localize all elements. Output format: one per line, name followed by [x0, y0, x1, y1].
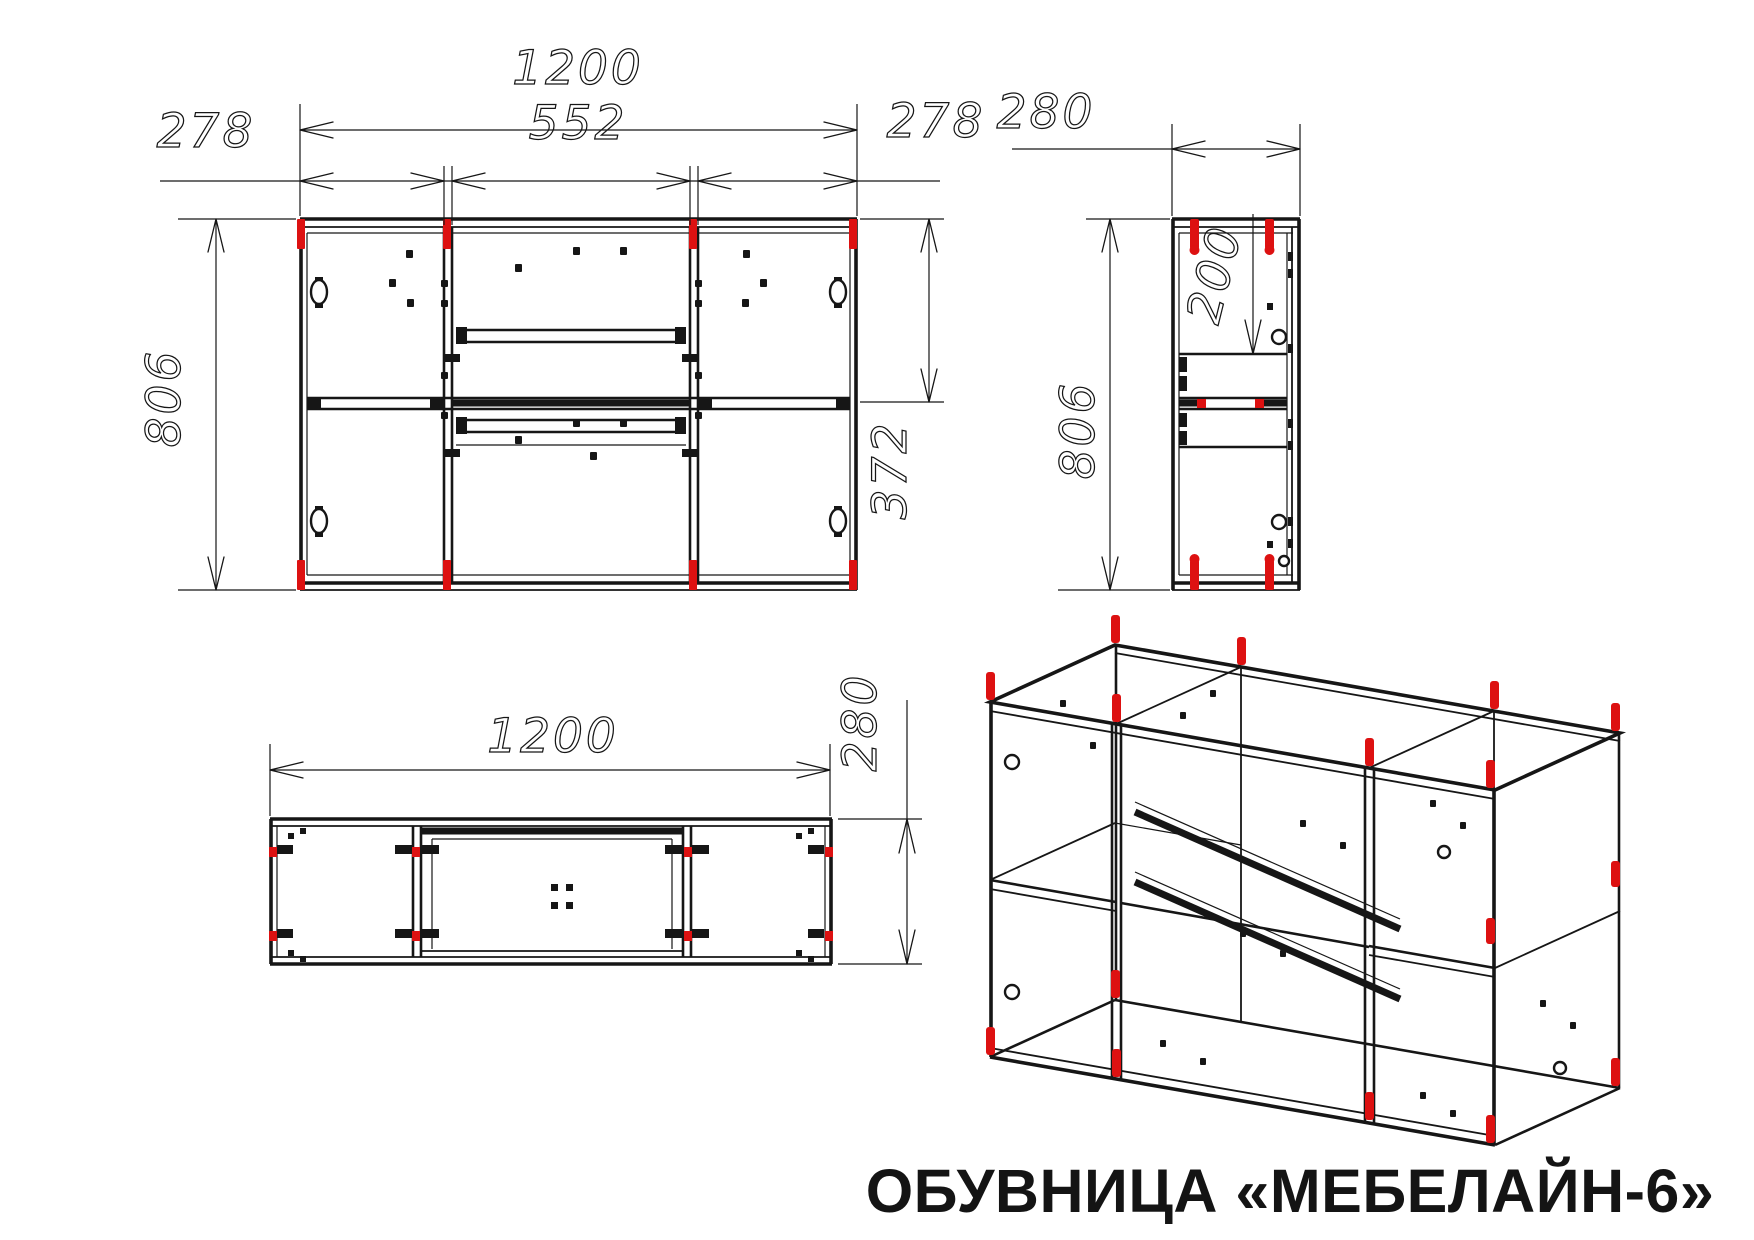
side-view: 280 200 806: [997, 85, 1300, 590]
dim-label-front-total-width: 1200: [512, 41, 644, 96]
dim-label-front-left-section: 278: [157, 104, 256, 159]
dim-label-side-depth: 280: [997, 85, 1096, 140]
dim-plan-depth: 280: [833, 673, 922, 964]
dim-side-total-height: 806: [1051, 219, 1170, 590]
dim-label-plan-depth: 280: [833, 673, 888, 772]
dim-front-top-to-shelf: 372: [860, 219, 944, 519]
plan-structure: [270, 819, 832, 964]
drawing-sheet: 1200 278 552 278 806 372: [0, 0, 1754, 1240]
product-title: ОБУВНИЦА «МЕБЕЛАЙН-6»: [866, 1156, 1715, 1225]
front-view: 1200 278 552 278 806 372: [137, 41, 985, 590]
dim-side-top-to-first-shelf: 200: [1176, 214, 1261, 354]
dim-label-front-right-section: 278: [887, 94, 986, 149]
front-structure: [300, 219, 857, 590]
iso-structure: [990, 645, 1620, 1145]
dim-label-side-total-height: 806: [1051, 381, 1106, 480]
front-hinge-cams: [311, 277, 846, 537]
dim-label-front-total-height: 806: [137, 349, 192, 448]
dim-side-depth: 280: [997, 85, 1300, 216]
dim-label-front-top-to-shelf: 372: [863, 421, 918, 520]
plan-connector-pins: [269, 847, 833, 941]
isometric-view: [986, 615, 1620, 1145]
dim-label-plan-total-width: 1200: [487, 709, 619, 764]
plan-view: 1200 280: [269, 673, 922, 964]
dim-label-side-top-to-first-shelf: 200: [1176, 220, 1253, 329]
plan-brackets: [277, 828, 824, 962]
dim-label-front-center-section: 552: [529, 96, 628, 151]
front-drill-holes: [389, 247, 767, 460]
dim-front-total-height: 806: [137, 219, 296, 590]
dim-plan-total-width: 1200: [270, 709, 830, 816]
dim-front-sections: 278 552 278: [157, 94, 986, 225]
